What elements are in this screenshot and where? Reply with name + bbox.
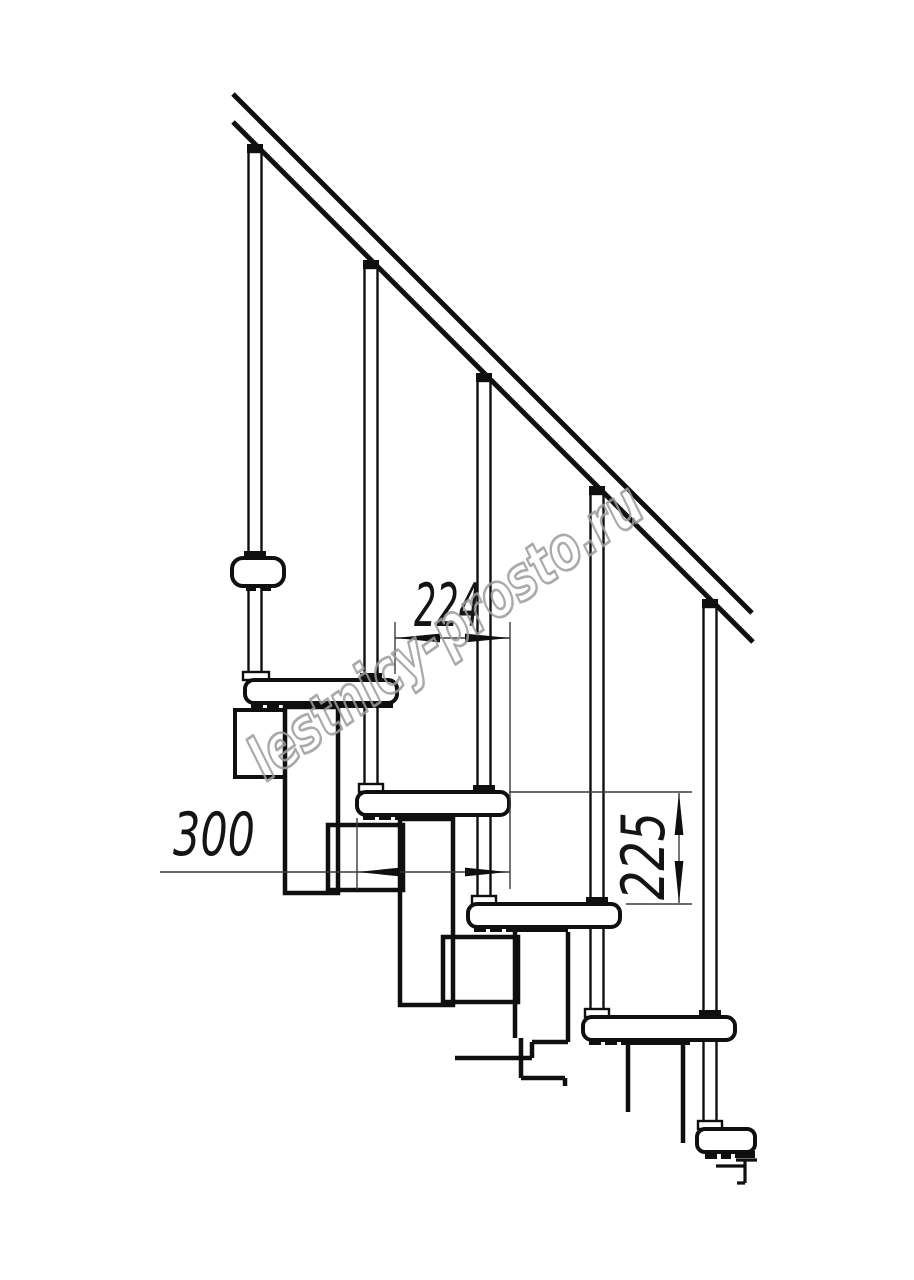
module-top-plate [735, 1151, 755, 1158]
staircase-drawing: 224 300 225 lestnicy-prosto.ru [0, 0, 914, 1280]
arrowhead-left [357, 868, 400, 877]
tread-foot [251, 702, 263, 708]
tread-foot [474, 926, 486, 932]
module-box-tall-4-cropped [628, 1045, 683, 1143]
module-top-plate [621, 1039, 690, 1045]
tread-foot [605, 1039, 617, 1045]
tread-3 [357, 792, 509, 815]
module-chain [235, 707, 757, 1183]
baluster-shaft [704, 607, 717, 1122]
baluster-5 [698, 599, 722, 1129]
baluster-shaft [249, 152, 262, 673]
tread-foot [363, 814, 375, 820]
module-top-plate [506, 926, 568, 932]
baluster-1 [243, 144, 269, 680]
bottom-step-cut-lines [716, 1160, 757, 1183]
dimension-label-225: 225 [609, 812, 679, 900]
tread-foot [379, 814, 391, 820]
tread-4 [468, 904, 620, 927]
module-box-tall-3-cropped [455, 932, 568, 1086]
tread-top-edge-view [232, 558, 284, 586]
tread-6 [697, 1129, 755, 1152]
tread-foot [261, 584, 271, 591]
handrail-top-edge [233, 94, 752, 613]
tread-foot [721, 1151, 731, 1159]
tread-foot [490, 926, 502, 932]
tread-foot [589, 1039, 601, 1045]
tread-5 [583, 1017, 735, 1040]
tread-foot [246, 584, 256, 591]
drawing-canvas: 224 300 225 lestnicy-prosto.ru [0, 0, 914, 1280]
dimension-label-300: 300 [173, 800, 255, 870]
tread-foot [705, 1151, 717, 1159]
